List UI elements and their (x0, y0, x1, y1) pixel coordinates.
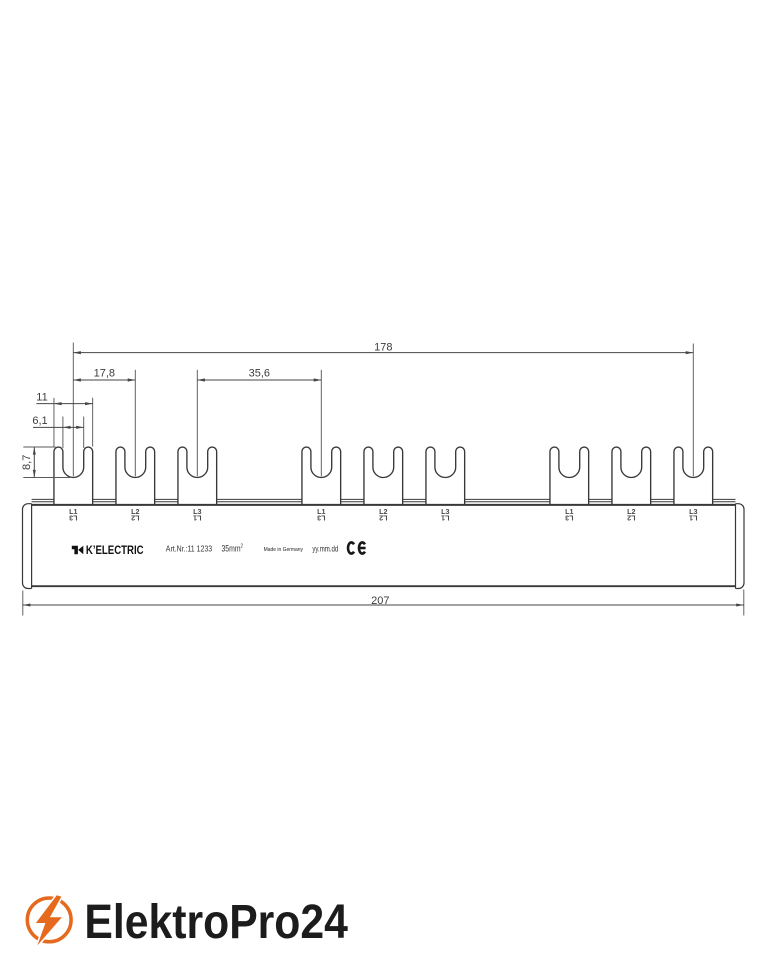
svg-text:ElektroPro24: ElektroPro24 (84, 894, 348, 948)
